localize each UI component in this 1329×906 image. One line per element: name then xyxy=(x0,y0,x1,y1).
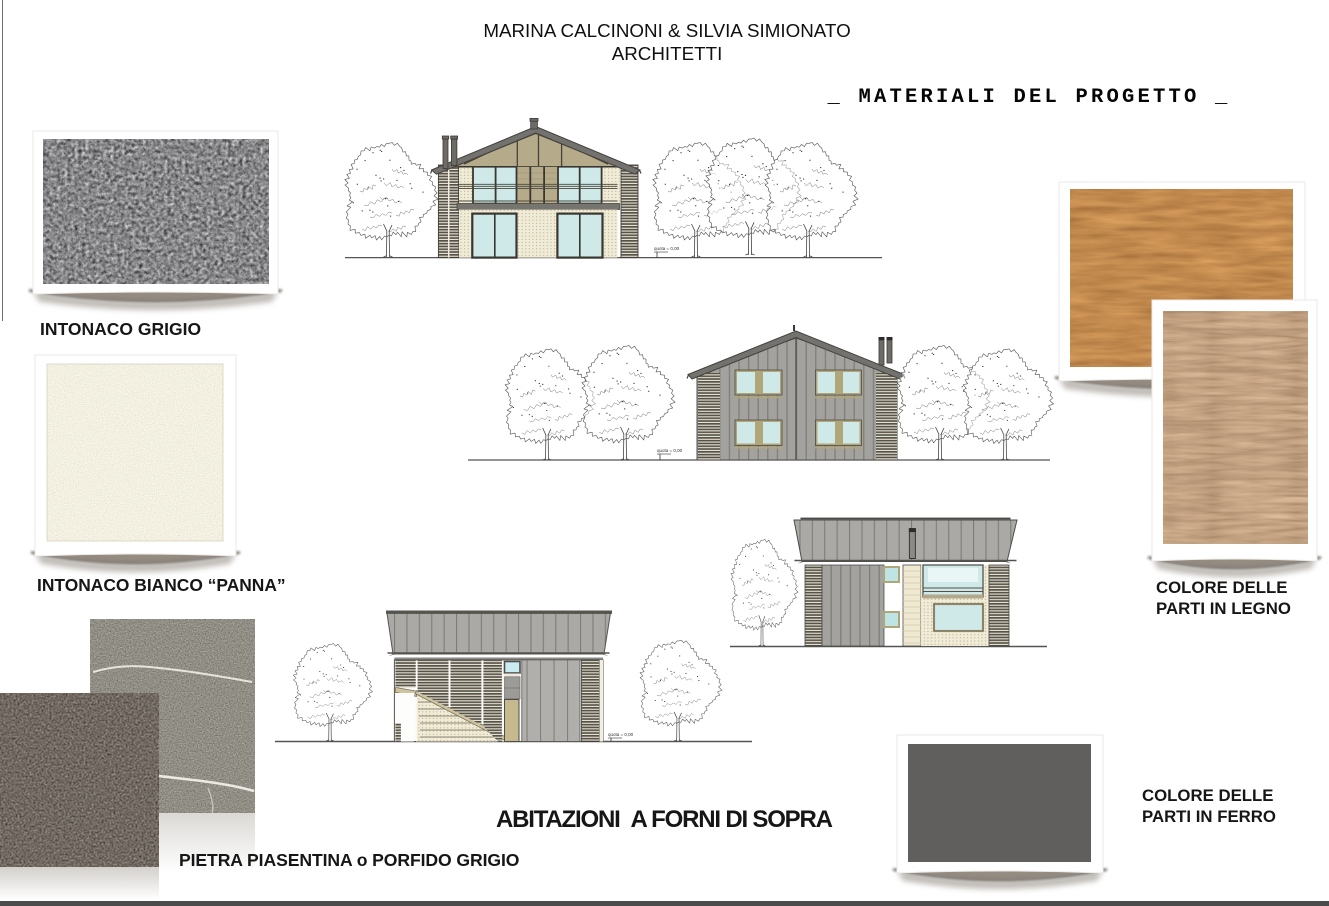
svg-text:quota = 0,00: quota = 0,00 xyxy=(608,732,634,737)
svg-text:quota = 0,00: quota = 0,00 xyxy=(657,448,683,453)
svg-text:quota = 0,00: quota = 0,00 xyxy=(654,246,680,251)
